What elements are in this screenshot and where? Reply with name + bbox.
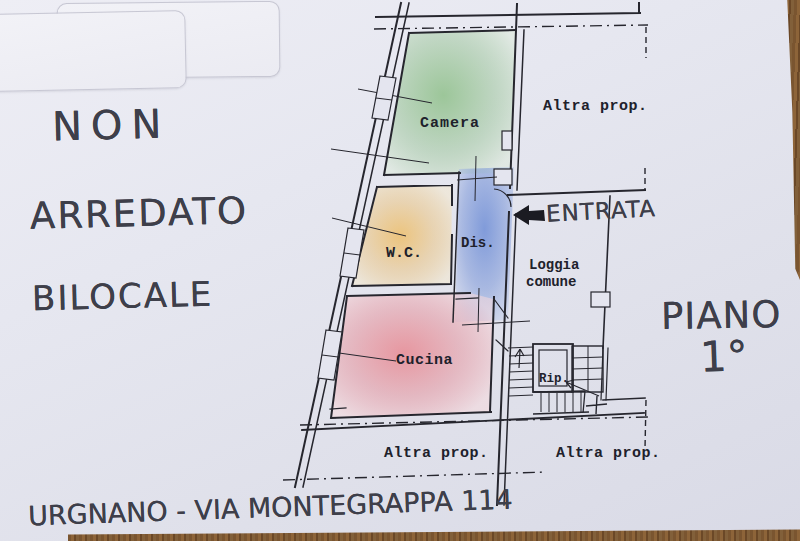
stairs-direction-arrow <box>566 380 599 396</box>
room-label-loggia-line1: Loggia <box>529 257 580 273</box>
handwritten-note-bilocale: BILOCALE <box>32 274 214 319</box>
room-label-dis: Dis. <box>461 235 495 251</box>
photographed-floorplan-page: NON ARREDATO BILOCALE PIANO 1° ENTRATA U… <box>0 0 800 541</box>
stairs-up-arrow <box>515 349 524 368</box>
handwritten-floor-number: 1° <box>699 331 748 382</box>
room-label-rip: Rip. <box>539 372 569 386</box>
room-label-cucina: Cucina <box>396 352 453 369</box>
other-prop-label-top: Altra prop. <box>543 98 648 115</box>
room-label-loggia-line2: comune <box>526 274 576 290</box>
other-prop-label-bottom-right: Altra prop. <box>556 445 661 462</box>
section-cross-mark <box>586 396 607 414</box>
other-prop-label-bottom-left: Altra prop. <box>384 445 489 462</box>
room-label-wc: W.C. <box>386 245 422 262</box>
room-camera-area <box>384 30 516 175</box>
entrance-arrow-icon <box>513 205 545 225</box>
room-label-camera: Camera <box>420 115 480 132</box>
handwritten-note-non: NON <box>51 100 170 149</box>
floorplan-drawing: Camera Altra prop. W.C. Dis. Loggia comu… <box>0 0 800 541</box>
handwritten-note-arredato: ARREDATO <box>29 189 248 238</box>
